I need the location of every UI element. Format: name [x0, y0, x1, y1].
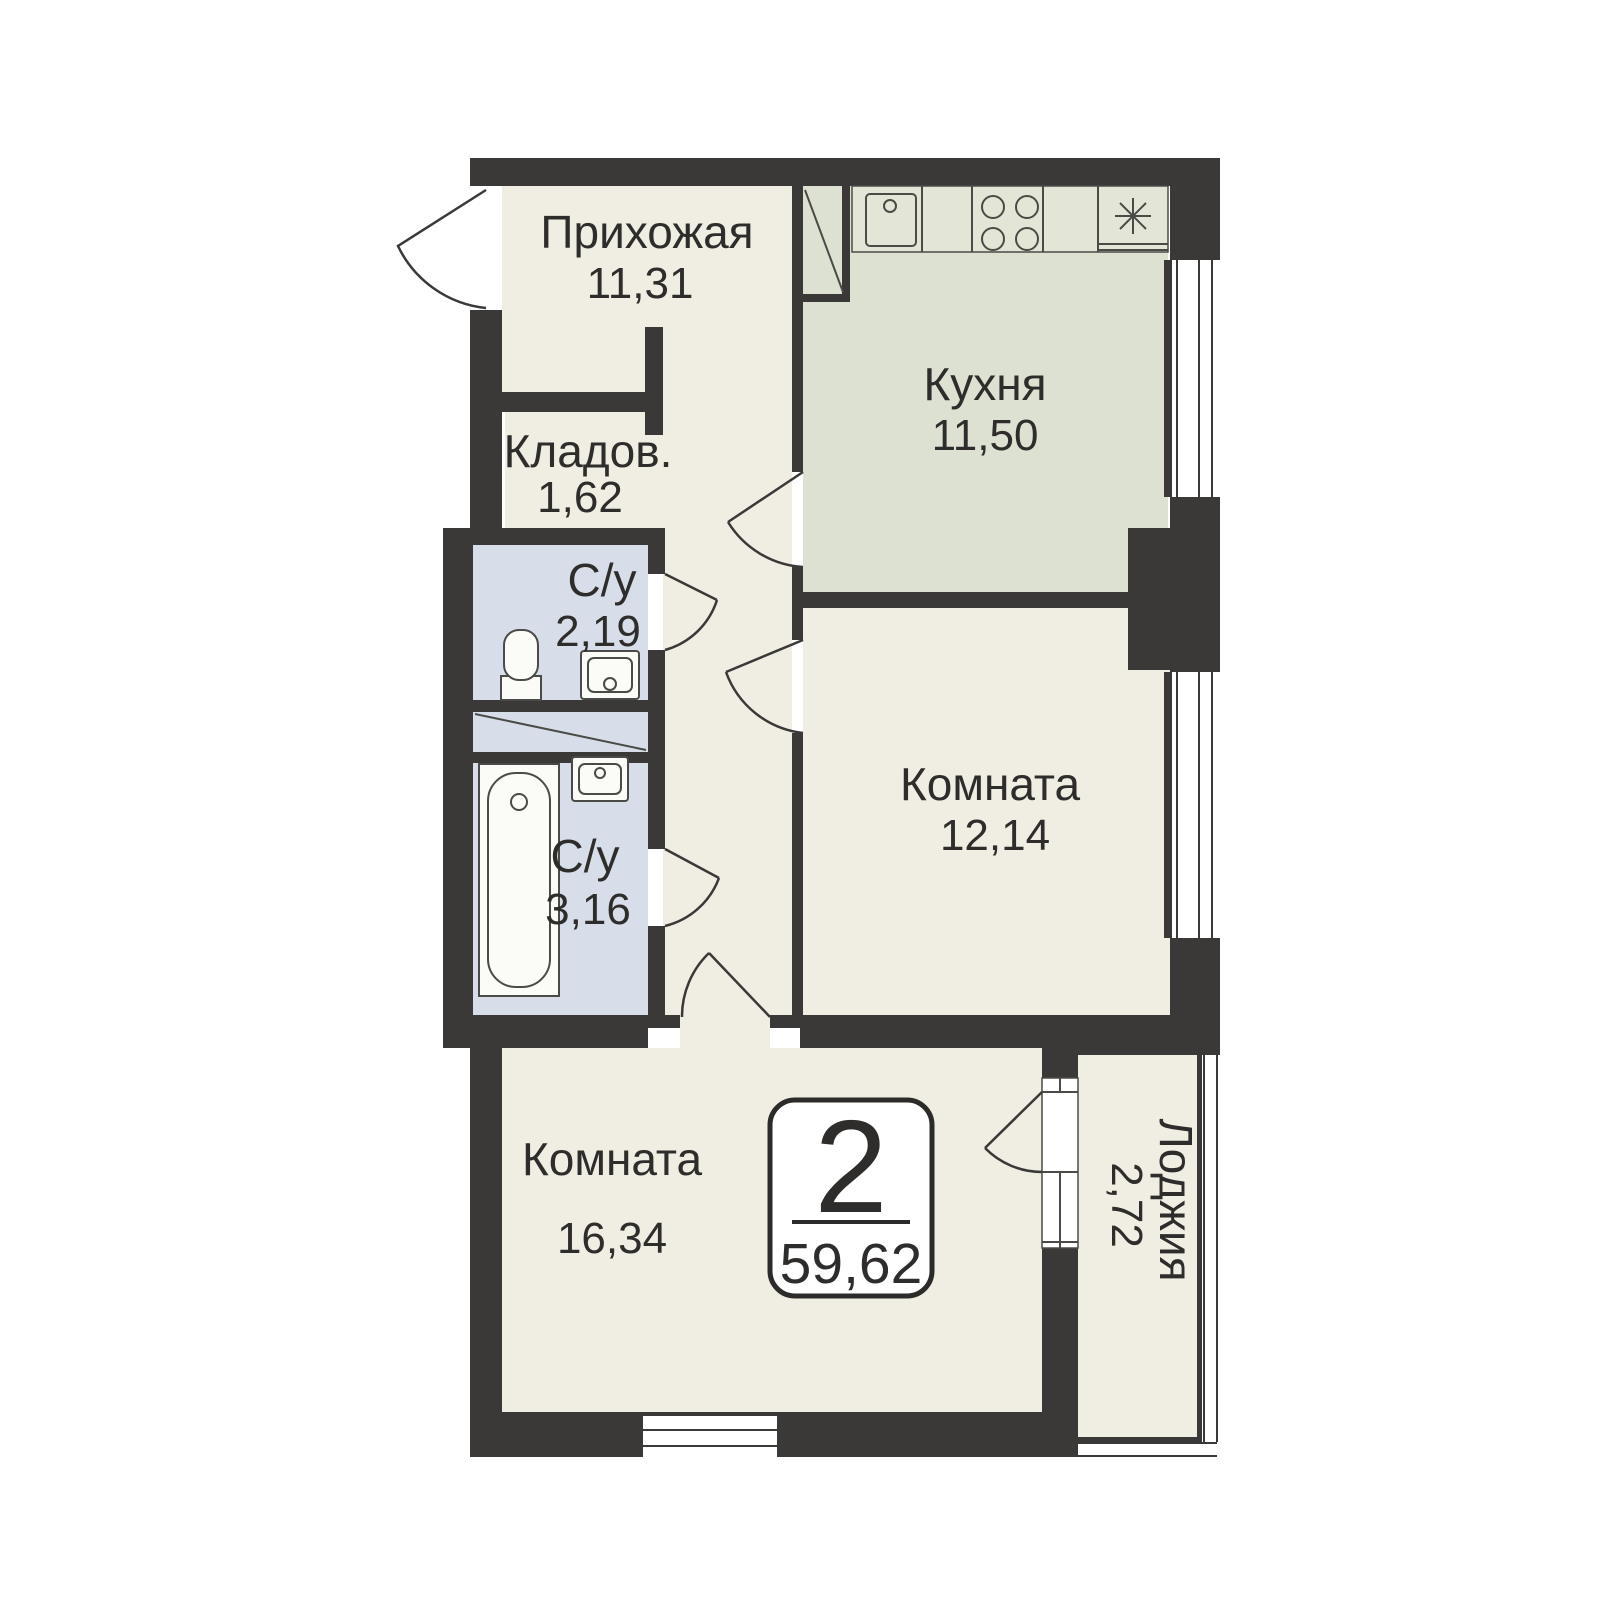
vent-shaft-icon	[473, 712, 648, 752]
storage-label: Кладов.	[504, 425, 673, 477]
window-icon-kitchen	[1172, 260, 1220, 497]
window-icon-living	[643, 1416, 777, 1457]
window-icon-loggia-right	[1202, 1055, 1220, 1458]
bath-large-area: 3,16	[545, 885, 631, 934]
window-icon-bedroom	[1172, 672, 1220, 938]
corridor-floor	[663, 392, 792, 1017]
bath-small-label: С/у	[568, 554, 637, 606]
kitchen-area: 11,50	[932, 411, 1039, 460]
living-entry-gap	[680, 1015, 770, 1048]
floor-plan-page: Прихожая 11,31 Кухня 11,50 Кладов. 1,62 …	[0, 0, 1620, 1620]
kitchen-label: Кухня	[923, 358, 1046, 410]
door-swing-icon-entrance	[398, 190, 486, 308]
window-icon-loggia-bottom	[1078, 1442, 1218, 1458]
living-area: 16,34	[557, 1214, 667, 1263]
bedroom-label: Комната	[900, 758, 1081, 810]
sink-icon-small-bath	[581, 651, 639, 699]
loggia-label: Лоджия	[1150, 1119, 1202, 1282]
toilet-icon	[501, 630, 541, 700]
storage-area: 1,62	[537, 473, 623, 522]
bath-large-label: С/у	[551, 830, 620, 882]
hallway-area: 11,31	[587, 259, 694, 308]
kitchen-counter	[852, 186, 1168, 252]
balcony-door-window-frame	[1042, 1078, 1078, 1248]
sink-icon-large-bath	[572, 757, 628, 801]
bathtub-icon	[479, 764, 559, 996]
hallway-label: Прихожая	[540, 206, 753, 258]
bath-small-area: 2,19	[555, 607, 641, 656]
badge-total-area: 59,62	[780, 1232, 923, 1296]
bedroom-area: 12,14	[940, 811, 1050, 860]
living-label: Комната	[522, 1133, 703, 1185]
unit-badge: 2 59,62	[770, 1093, 932, 1296]
badge-rooms-count: 2	[814, 1093, 887, 1240]
loggia-area: 2,72	[1102, 1162, 1151, 1248]
floor-plan: Прихожая 11,31 Кухня 11,50 Кладов. 1,62 …	[0, 0, 1620, 1620]
